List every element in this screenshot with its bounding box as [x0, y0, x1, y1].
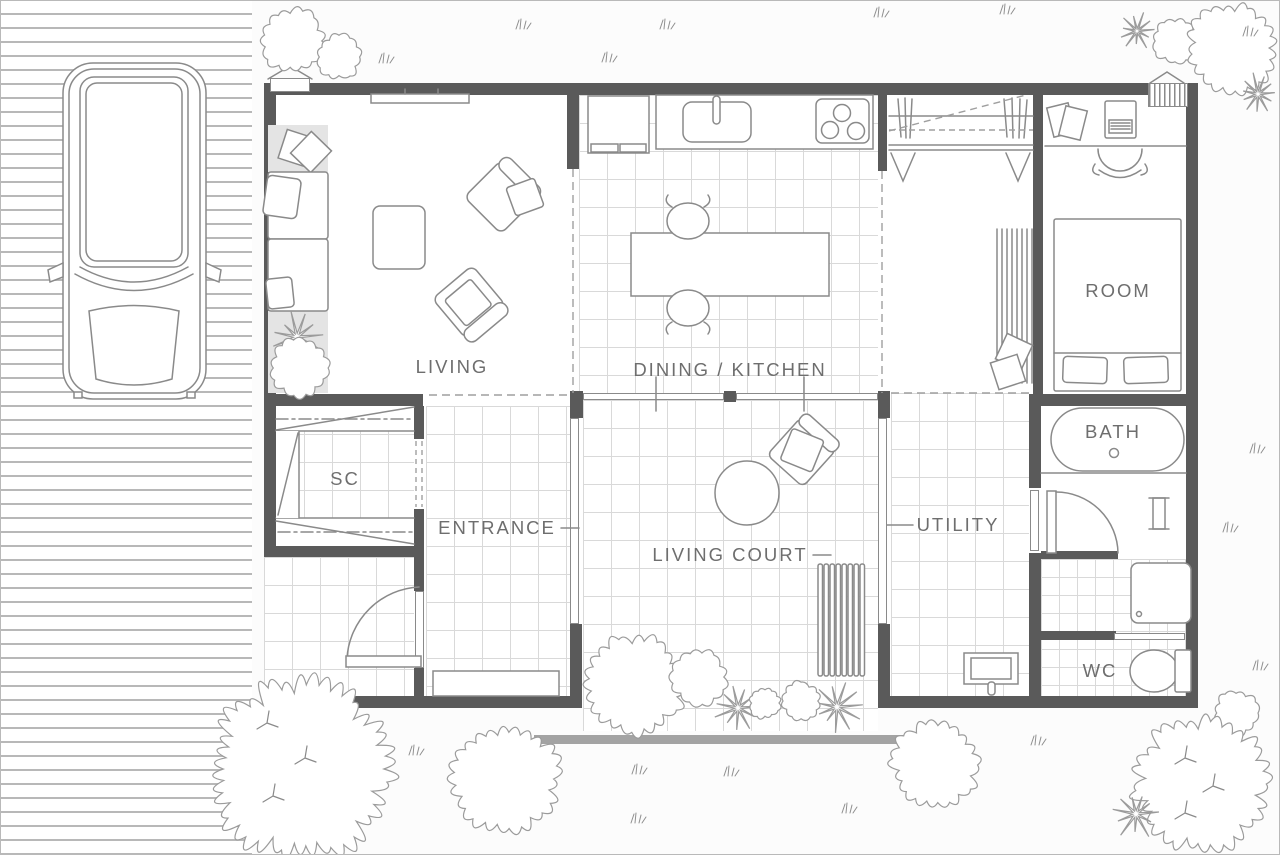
- spiky-shrub-icon: [1121, 12, 1155, 48]
- round-tree-icon: [1215, 691, 1260, 736]
- wall-utility-bath-top: [1029, 406, 1041, 488]
- grass-tuft-icon: [409, 745, 424, 755]
- wall-porch-right-bottom: [414, 668, 424, 708]
- round-tree-icon: [317, 33, 361, 78]
- sliding-door-dining-court-left: [583, 393, 724, 400]
- living-court-label: LIVING COURT: [652, 544, 807, 566]
- grass-tuft-icon: [1223, 522, 1238, 532]
- wall-sc-bottom: [264, 545, 423, 557]
- floor-dining-kitchen: [579, 95, 878, 393]
- round-tree-icon: [1187, 3, 1276, 96]
- round-tree-icon: [260, 7, 327, 71]
- living-label: LIVING: [416, 356, 489, 378]
- grass-tuft-icon: [1243, 26, 1258, 36]
- branch-icon: [1203, 774, 1224, 792]
- branch-icon: [1175, 801, 1196, 819]
- door-jamb-entry: [415, 591, 424, 668]
- round-tree-icon: [1130, 714, 1273, 853]
- round-tree-icon: [888, 720, 981, 807]
- floor-porch: [264, 557, 414, 696]
- wc-label: WC: [1083, 660, 1118, 682]
- room-label: ROOM: [1085, 280, 1151, 302]
- wall-closet-room: [1033, 95, 1043, 394]
- sliding-door-wc: [1114, 633, 1185, 640]
- shutter-roof-icon: [1150, 72, 1184, 83]
- grass-tuft-icon: [602, 52, 617, 62]
- utility-label: UTILITY: [917, 514, 1000, 536]
- wall-court-left-lower: [570, 624, 582, 708]
- bath-label: BATH: [1085, 421, 1141, 443]
- grass-tuft-icon: [631, 813, 646, 823]
- grass-tuft-icon: [516, 19, 531, 29]
- branch-icon: [295, 746, 316, 764]
- floor-utility: [891, 393, 1029, 696]
- sc-label: SC: [330, 468, 360, 490]
- wall-court-right-lower: [878, 624, 890, 708]
- grass-tuft-icon: [632, 764, 647, 774]
- wall-top: [264, 83, 1198, 95]
- grass-tuft-icon: [874, 7, 889, 17]
- window-court-left: [570, 418, 579, 624]
- wall-utility-bath-bottom: [1029, 553, 1041, 708]
- branch-icon: [1175, 746, 1196, 764]
- wall-sc-right-top: [414, 406, 424, 439]
- wall-left: [264, 83, 276, 557]
- wall-court-post-right: [878, 391, 890, 418]
- wall-room-bottom: [1029, 394, 1198, 406]
- grass-tuft-icon: [379, 53, 394, 63]
- entrance-label: ENTRANCE: [438, 517, 556, 539]
- dining-kitchen-label: DINING / KITCHEN: [633, 359, 826, 381]
- sliding-door-dining-court-right: [736, 393, 878, 400]
- spiky-shrub-icon: [1113, 797, 1159, 837]
- grass-tuft-icon: [660, 19, 675, 29]
- door-utility-bath: [1030, 490, 1039, 551]
- vent-window-living: [270, 78, 310, 92]
- spiky-shrub-icon: [1243, 73, 1275, 112]
- wall-dining-closet: [878, 95, 887, 171]
- wall-living-dining: [567, 95, 579, 169]
- wall-bath-stub: [1041, 551, 1118, 559]
- window-court-right: [878, 418, 887, 624]
- grass-tuft-icon: [842, 803, 857, 813]
- wall-wc-divider: [1041, 631, 1116, 640]
- grass-tuft-icon: [724, 766, 739, 776]
- branch-icon: [257, 711, 278, 729]
- wall-court-post-mid: [724, 391, 736, 402]
- grass-tuft-icon: [1031, 735, 1046, 745]
- wall-court-post-left: [570, 391, 583, 418]
- branch-icon: [263, 784, 284, 802]
- floor-plan-canvas: LIVING DINING / KITCHEN ROOM SC ENTRANCE…: [0, 0, 1280, 855]
- wall-living-sc: [264, 394, 423, 406]
- garden-step: [534, 735, 926, 744]
- grass-tuft-icon: [1250, 443, 1265, 453]
- grass-tuft-icon: [1000, 4, 1015, 14]
- round-tree-icon: [1153, 19, 1199, 64]
- grass-tuft-icon: [1253, 660, 1268, 670]
- floor-entrance: [426, 406, 570, 696]
- shutter-window-room: [1148, 83, 1188, 107]
- wall-porch-right-top: [414, 557, 424, 591]
- driveway-deck: [1, 1, 252, 855]
